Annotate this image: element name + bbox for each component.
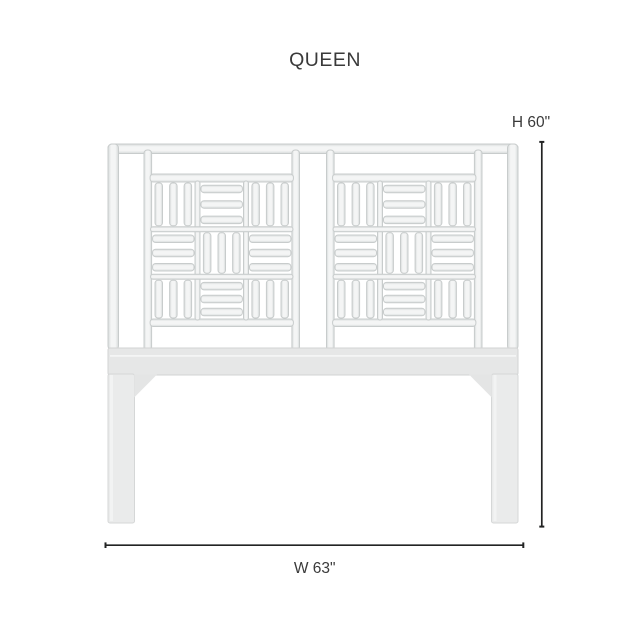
svg-text:W 63": W 63" (294, 560, 336, 577)
svg-text:H 60": H 60" (512, 114, 550, 131)
svg-text:QUEEN: QUEEN (289, 49, 361, 71)
